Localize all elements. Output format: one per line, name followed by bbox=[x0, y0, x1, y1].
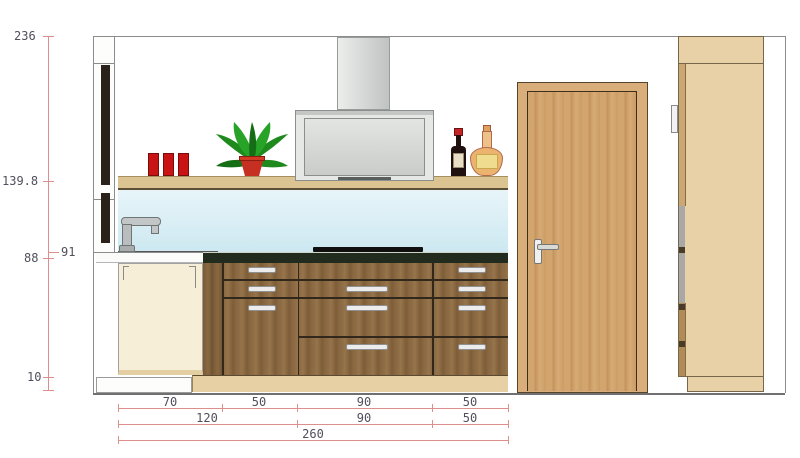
base-cabinet-50-right[interactable] bbox=[434, 263, 508, 375]
dim-row2-line bbox=[118, 424, 508, 425]
right-cabinet-hinge-mark bbox=[679, 304, 685, 310]
dim-label-90: 90 bbox=[357, 411, 371, 425]
dim-label-139-8: 139.8 bbox=[2, 174, 38, 188]
door[interactable] bbox=[517, 82, 648, 393]
dim-tick bbox=[43, 258, 54, 259]
dim-tick bbox=[297, 404, 298, 412]
red-canister bbox=[163, 153, 174, 176]
dim-label-260: 260 bbox=[302, 427, 324, 441]
dim-tick bbox=[297, 420, 298, 428]
right-cabinet-edge-bottom bbox=[679, 303, 686, 376]
hood-body bbox=[295, 110, 434, 181]
door-handle-lever[interactable] bbox=[537, 244, 559, 250]
dim-tick bbox=[43, 390, 54, 391]
deep-drawer[interactable] bbox=[299, 299, 432, 336]
plinth-wood bbox=[192, 375, 508, 392]
dim-tick bbox=[43, 377, 54, 378]
base-cabinet-run bbox=[203, 263, 508, 375]
faucet-base bbox=[119, 245, 135, 252]
sink-countertop bbox=[96, 252, 203, 263]
dim-tick bbox=[118, 420, 119, 428]
appliance-handle-right-top bbox=[189, 266, 196, 267]
drawer[interactable] bbox=[434, 281, 508, 297]
deep-drawer[interactable] bbox=[434, 299, 508, 336]
red-canister bbox=[178, 153, 189, 176]
right-cabinet-hinge-mark bbox=[679, 247, 685, 253]
dim-tick bbox=[118, 436, 119, 444]
blind-front bbox=[299, 263, 432, 279]
potted-plant[interactable] bbox=[212, 116, 292, 178]
dim-tick bbox=[43, 36, 54, 37]
hood-top-rim bbox=[296, 111, 433, 115]
wine-bottle-label bbox=[453, 153, 464, 168]
dim-tick bbox=[508, 436, 509, 444]
filler-stile bbox=[203, 263, 222, 375]
right-cabinet-division bbox=[679, 63, 763, 64]
dim-tick bbox=[118, 404, 119, 412]
drawer[interactable] bbox=[434, 263, 508, 279]
floor-line bbox=[93, 393, 785, 395]
dim-label-236: 236 bbox=[14, 29, 36, 43]
base-cabinet-90-center[interactable] bbox=[299, 263, 432, 375]
dim-label-90: 90 bbox=[357, 395, 371, 409]
faucet-body bbox=[122, 224, 132, 247]
kitchen-elevation-canvas: 236 139.8 91 88 10 bbox=[0, 0, 800, 458]
appliance-handle-left bbox=[123, 266, 124, 280]
door-leaf bbox=[527, 91, 637, 391]
right-cabinet-edge-top bbox=[679, 64, 686, 206]
plant-pot-rim bbox=[239, 156, 265, 161]
hood-chimney bbox=[337, 37, 390, 110]
left-tall-cabinet-handle-strip bbox=[101, 65, 110, 243]
right-cabinet-hinge-mark bbox=[679, 341, 685, 347]
dim-label-50: 50 bbox=[463, 395, 477, 409]
hood-glass-panel bbox=[304, 118, 425, 176]
left-dimension-line bbox=[48, 36, 49, 390]
faucet-spout bbox=[151, 225, 159, 234]
cabinet-door[interactable] bbox=[224, 299, 298, 375]
glass-backsplash[interactable] bbox=[118, 190, 508, 252]
appliance-handle-left-top bbox=[123, 266, 129, 267]
right-cabinet-handle[interactable] bbox=[671, 105, 678, 133]
cooktop[interactable] bbox=[313, 247, 423, 252]
dim-tick bbox=[432, 420, 433, 428]
red-canister bbox=[148, 153, 159, 176]
dim-label-120: 120 bbox=[196, 411, 218, 425]
integrated-appliance-front[interactable] bbox=[118, 263, 203, 375]
deep-drawer[interactable] bbox=[299, 338, 432, 375]
dim-label-50: 50 bbox=[252, 395, 266, 409]
left-tall-cabinet[interactable] bbox=[93, 36, 115, 253]
left-tall-cabinet-handle-gap bbox=[101, 185, 110, 193]
drawer[interactable] bbox=[224, 263, 298, 279]
deep-drawer[interactable] bbox=[434, 338, 508, 375]
right-tall-cabinet[interactable] bbox=[678, 36, 764, 377]
drawer[interactable] bbox=[224, 281, 298, 297]
hood-handle bbox=[338, 177, 391, 180]
right-cabinet-plinth bbox=[687, 377, 764, 392]
base-cabinet-50-left[interactable] bbox=[224, 263, 298, 375]
granite-countertop bbox=[203, 252, 508, 263]
dim-label-70: 70 bbox=[163, 395, 177, 409]
dim-tick bbox=[222, 404, 223, 412]
drawer[interactable] bbox=[299, 281, 432, 297]
dim-tick bbox=[432, 404, 433, 412]
dim-label-10: 10 bbox=[27, 370, 41, 384]
dim-tick bbox=[508, 420, 509, 428]
dim-tick bbox=[48, 252, 59, 253]
left-tall-cabinet-division bbox=[94, 63, 114, 64]
dim-tick bbox=[43, 181, 54, 182]
door-handle-plate bbox=[534, 239, 542, 264]
plinth-left-white bbox=[96, 377, 192, 393]
dim-label-88: 88 bbox=[24, 251, 38, 265]
dim-tick bbox=[508, 404, 509, 412]
decanter-label bbox=[476, 154, 498, 169]
right-cabinet-edge-mid bbox=[679, 206, 685, 303]
right-wall-line bbox=[785, 36, 786, 393]
dim-label-91: 91 bbox=[61, 245, 75, 259]
appliance-handle-right bbox=[195, 266, 196, 288]
dim-label-50: 50 bbox=[463, 411, 477, 425]
